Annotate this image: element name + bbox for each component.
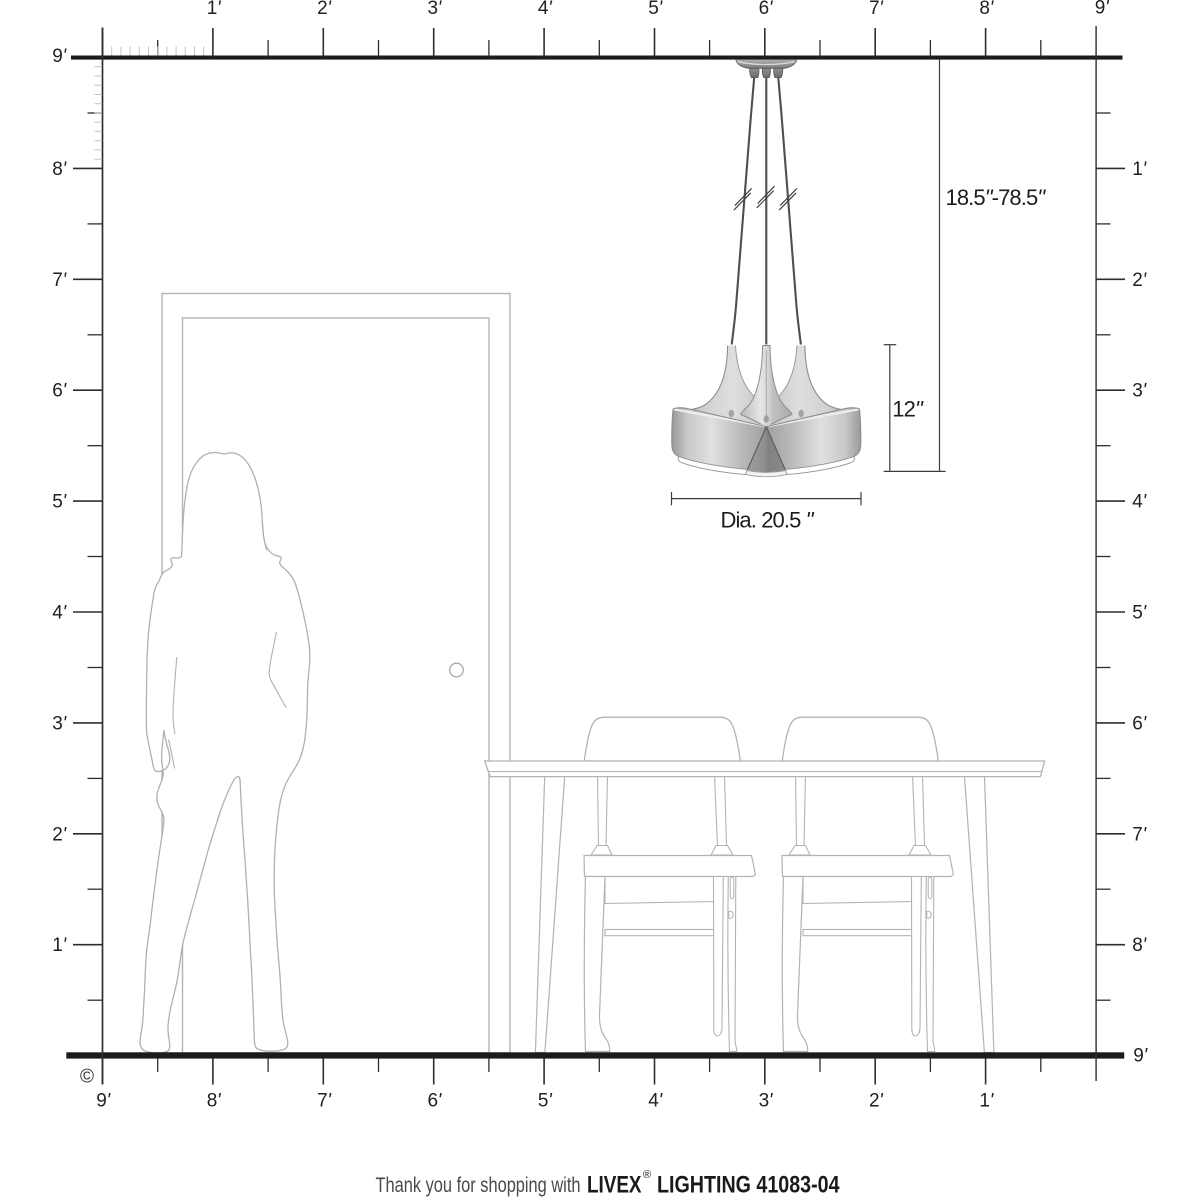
svg-text:7': 7' bbox=[52, 270, 67, 291]
svg-text:1': 1' bbox=[1132, 159, 1147, 180]
svg-text:5': 5' bbox=[52, 492, 67, 513]
svg-text:9': 9' bbox=[1095, 0, 1110, 19]
svg-text:1': 1' bbox=[207, 0, 222, 19]
svg-text:7': 7' bbox=[1132, 824, 1147, 845]
svg-text:18.5"-78.5": 18.5"-78.5" bbox=[946, 185, 1047, 210]
svg-text:8': 8' bbox=[1132, 935, 1147, 956]
svg-text:8': 8' bbox=[207, 1091, 222, 1112]
svg-text:1': 1' bbox=[979, 1091, 994, 1112]
svg-text:5': 5' bbox=[648, 0, 663, 19]
svg-text:LIVEX: LIVEX bbox=[587, 1172, 642, 1199]
svg-text:2': 2' bbox=[317, 0, 332, 19]
svg-text:3': 3' bbox=[759, 1091, 774, 1112]
svg-text:6': 6' bbox=[759, 0, 774, 19]
svg-text:2': 2' bbox=[1132, 270, 1147, 291]
svg-text:6': 6' bbox=[427, 1091, 442, 1112]
svg-text:3': 3' bbox=[1132, 381, 1147, 402]
svg-text:9': 9' bbox=[1133, 1046, 1148, 1067]
svg-text:3': 3' bbox=[52, 713, 67, 734]
svg-text:12": 12" bbox=[892, 397, 924, 422]
svg-text:4': 4' bbox=[648, 1091, 663, 1112]
svg-text:®: ® bbox=[643, 1169, 651, 1181]
svg-text:4': 4' bbox=[1132, 492, 1147, 513]
svg-text:1': 1' bbox=[52, 935, 67, 956]
svg-text:Thank you for shopping with: Thank you for shopping with bbox=[376, 1173, 581, 1197]
svg-text:8': 8' bbox=[979, 0, 994, 19]
svg-text:7': 7' bbox=[869, 0, 884, 19]
svg-text:7': 7' bbox=[317, 1091, 332, 1112]
svg-text:LIGHTING 41083-04: LIGHTING 41083-04 bbox=[657, 1172, 840, 1199]
svg-text:6': 6' bbox=[1132, 713, 1147, 734]
svg-text:6': 6' bbox=[52, 381, 67, 402]
svg-text:8': 8' bbox=[52, 159, 67, 180]
svg-text:5': 5' bbox=[538, 1091, 553, 1112]
svg-text:Dia. 20.5 ": Dia. 20.5 " bbox=[720, 508, 814, 533]
svg-text:2': 2' bbox=[52, 824, 67, 845]
svg-text:4': 4' bbox=[538, 0, 553, 19]
svg-text:4': 4' bbox=[52, 603, 67, 624]
svg-text:2': 2' bbox=[869, 1091, 884, 1112]
svg-text:5': 5' bbox=[1132, 603, 1147, 624]
svg-text:3': 3' bbox=[427, 0, 442, 19]
svg-text:9': 9' bbox=[96, 1091, 111, 1112]
svg-text:©: © bbox=[80, 1067, 94, 1088]
svg-text:9': 9' bbox=[52, 46, 67, 67]
